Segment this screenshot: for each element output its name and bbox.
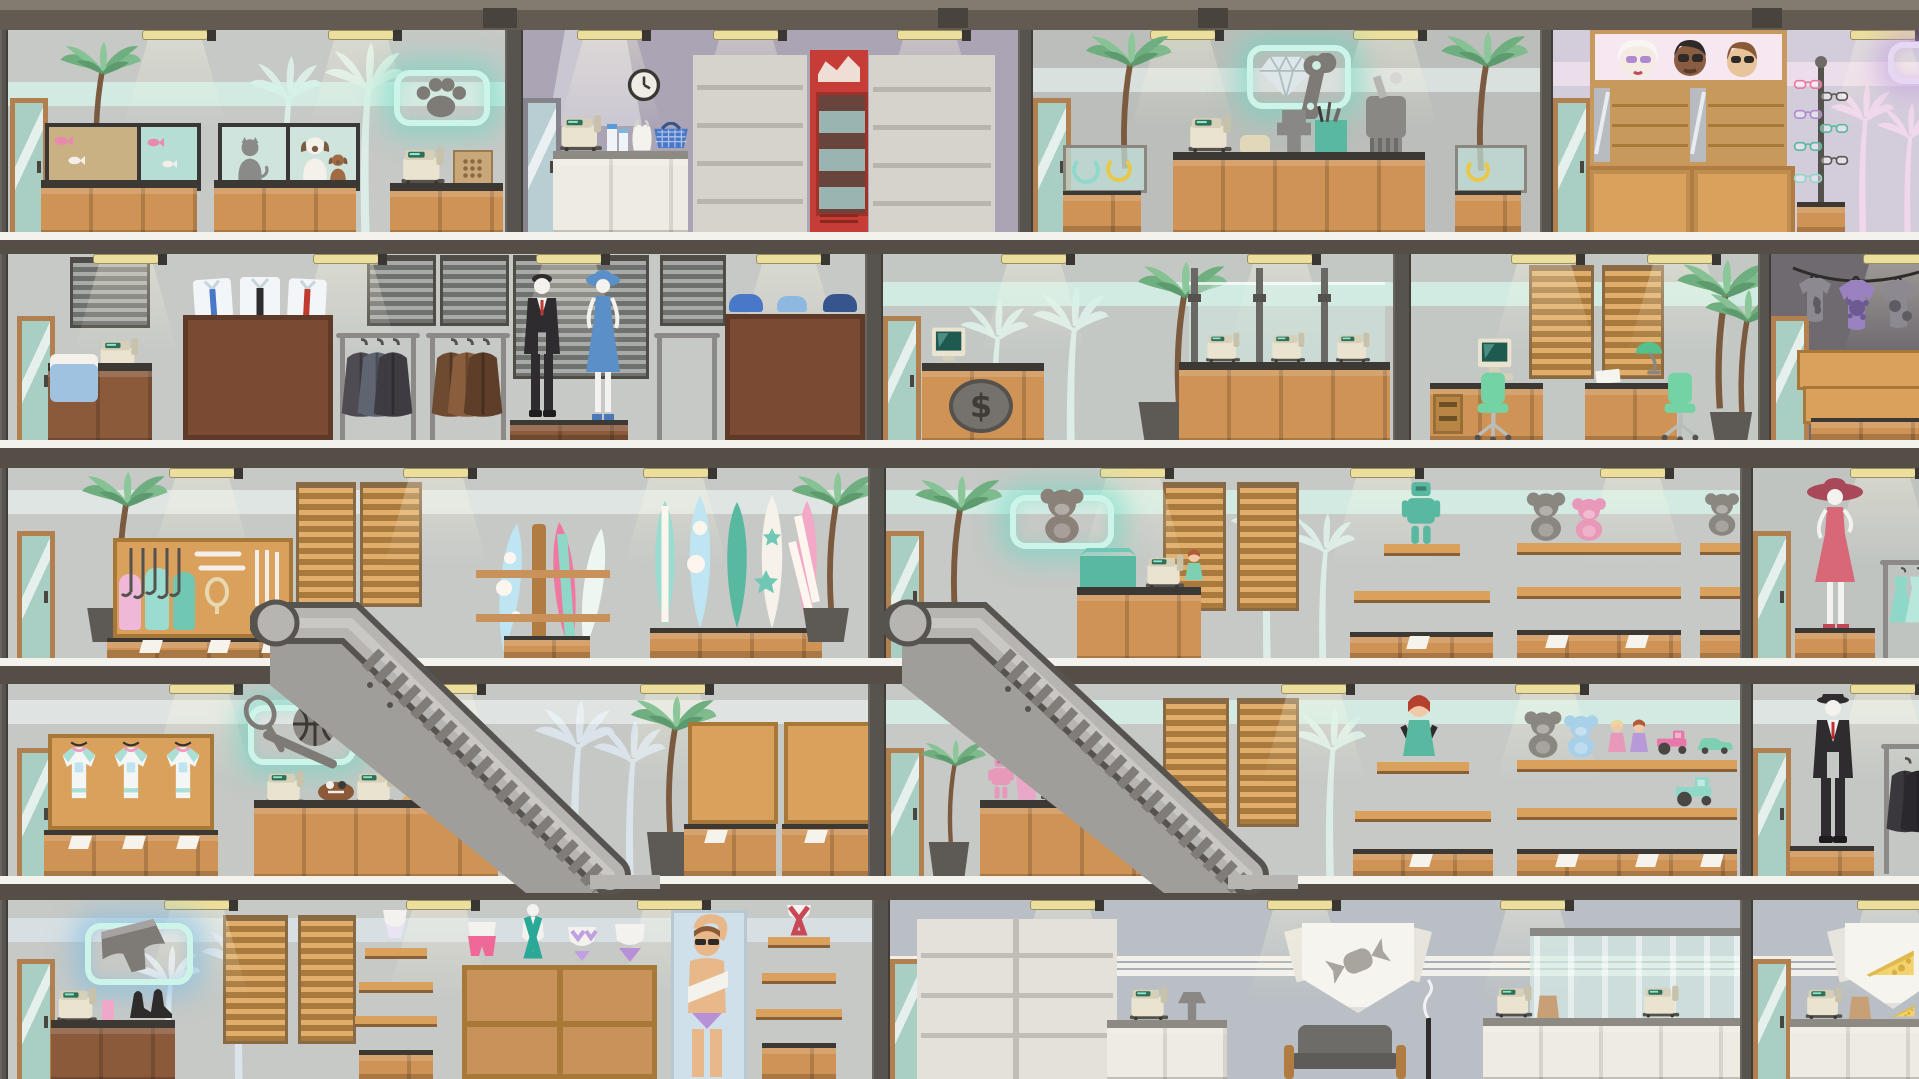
candy-icon [1319,930,1397,993]
roof-vent [1752,8,1782,28]
ceiling-light [1267,900,1333,910]
jewelry-case [1063,145,1141,232]
cash-register [398,146,448,184]
ceiling-light [403,468,469,478]
pet-shop-sign[interactable] [394,70,490,126]
display-platform [510,420,628,440]
shop-bank[interactable]: $ [883,254,1393,440]
shop-door[interactable] [1753,959,1791,1079]
tool-cup [1315,120,1347,152]
candy-shop-sign[interactable] [1302,923,1414,1013]
display-shirts [192,273,328,319]
ceiling-light [1500,900,1566,910]
wall-divider [1740,684,1753,884]
coat-rack-brown[interactable] [426,333,510,440]
escalator-left[interactable] [250,545,670,895]
pedestal [1795,628,1875,658]
cheese-wedge [1891,1000,1917,1020]
floor-surface [0,440,1919,448]
shop-underwear[interactable] [8,900,872,1079]
plant-pot [800,608,852,642]
armchair[interactable] [1280,1025,1410,1079]
shelf-cabinet[interactable] [725,314,865,440]
shop-menswear[interactable] [8,254,865,440]
polishing-machine [1360,82,1412,152]
mannequin-blue-dress [578,268,628,422]
torso-swim-shorts [460,920,504,965]
shop-convenience-store[interactable] [523,30,1018,232]
shop-door[interactable] [883,316,921,440]
coat-rack[interactable] [1881,744,1919,874]
cash-register [1640,984,1682,1018]
faces-display-banner [1590,30,1787,84]
toy-tractor [1653,726,1693,758]
window-blinds [440,255,509,326]
hat-display [725,292,865,314]
roof-vent [938,8,968,28]
repair-shop-sign[interactable] [1247,45,1351,109]
mall-cross-section: $ [0,0,1919,1079]
package-shelves[interactable] [917,913,1117,1079]
rotating-stand[interactable] [1795,60,1847,232]
display-base [1586,166,1694,232]
tiered-display[interactable] [355,908,437,1079]
shop-office[interactable] [1411,254,1758,440]
shop-eyewear-store[interactable] [1553,30,1919,232]
wall-divider [1540,30,1553,240]
mannequin-suit [516,272,568,422]
tee-splat [1839,277,1875,330]
teller-counter[interactable] [1179,268,1393,440]
boxer-shorts-icon [93,912,173,985]
ceiling-light [713,30,779,40]
ceiling-light [1001,254,1067,264]
doll [1627,718,1651,760]
dress-rack[interactable] [1880,560,1919,658]
deli-display-case[interactable] [1530,928,1740,1022]
candy-counter [1107,1020,1227,1079]
paw-icon [412,70,470,124]
grocery-shelves[interactable] [693,55,807,232]
ceiling-light [169,684,235,694]
ceiling-light [1511,254,1577,264]
snack-shelves[interactable] [869,55,995,232]
roof-vent [483,8,517,28]
deli-counter [1483,1018,1740,1079]
model-poster [671,910,747,1079]
underwear-sign[interactable] [85,923,193,985]
shop-cheese[interactable] [1753,900,1919,1079]
escalator-right[interactable] [878,545,1308,895]
roof-vent [1198,8,1228,28]
ceiling-light [1030,900,1096,910]
building-wall [0,30,8,1079]
wall-divider [505,30,523,240]
teddy-bear-icon [1034,485,1090,543]
papers [1595,369,1620,384]
torso-briefs [609,922,651,965]
wall-divider [865,254,883,448]
shirt-cabinet[interactable] [183,315,333,440]
ceiling-light [1857,900,1919,910]
wall-divider [1740,900,1753,1079]
shop-dress-boutique[interactable] [1753,468,1919,658]
cash-register [1185,114,1235,152]
ceiling-light [577,30,643,40]
shop-door[interactable] [17,531,55,658]
cash-register [1803,986,1845,1019]
teddy-shelf[interactable] [1517,487,1681,658]
shop-tshirt[interactable] [1771,254,1919,440]
tee-flame [1799,275,1831,322]
floor-surface [0,232,1919,240]
pet-cabinet [214,180,356,232]
ceiling-light [142,30,208,40]
office-chair [1654,371,1706,440]
mannequin-red-dress [1797,476,1873,630]
teddy-bear [1567,493,1611,543]
wall-clock [627,68,661,102]
ceiling-light [897,30,963,40]
paper-bag [1537,992,1559,1018]
toy-truck [1667,774,1723,808]
floor-slab [0,448,1919,468]
teddy-shelf-partial [1700,487,1740,658]
tee-dots [1881,277,1917,328]
torso-swimsuit [510,903,556,965]
sunglasses-shelves[interactable] [1590,84,1787,166]
drawer-unit [1433,394,1463,434]
dollar-emblem: $ [949,379,1013,433]
ceiling-light [1600,468,1666,478]
pen-cup [102,1000,114,1020]
grinder [1178,992,1206,1020]
large-doll [1389,692,1449,764]
figure-pyramid[interactable] [1350,480,1493,658]
ceiling-light [536,254,602,264]
ceiling-light [1350,468,1416,478]
candle-stand [1417,1008,1439,1079]
ceiling-light [1515,684,1581,694]
robot-figure [1394,480,1448,546]
pedestal [1790,846,1874,876]
tee-shelf [1797,350,1919,390]
parcel-box [453,150,493,187]
display-base [1690,166,1795,232]
wall-divider [1018,30,1033,240]
ceiling-light [1100,468,1166,478]
underwear-counter [51,1020,175,1079]
ceiling-light [1353,30,1419,40]
workbench-counter [1173,152,1425,232]
doll [1605,718,1629,760]
tiered-display[interactable] [756,903,842,1079]
ball-rack[interactable] [688,722,868,876]
wall-divider [1758,254,1771,448]
plant-pot [1707,412,1755,440]
jersey-display[interactable] [48,734,214,876]
folded-jeans [50,354,98,402]
ceiling-light [328,30,394,40]
window-blinds [660,255,726,326]
tee-counter [1811,418,1919,440]
teddy-bear [1559,710,1603,760]
ceiling-light [1850,30,1916,40]
wall-divider [1740,468,1753,666]
heels-pair [124,984,172,1022]
cash-register [557,114,605,151]
paper-bag [1849,993,1871,1019]
ceiling-light [1247,254,1313,264]
toy-shop-sign[interactable] [1010,495,1114,549]
shop-door[interactable] [17,959,55,1079]
wall-divider [872,900,890,1079]
wrench-icon [1287,53,1339,119]
dress-rack[interactable] [654,333,720,440]
shop-confectionery[interactable] [890,900,1740,1079]
shop-door[interactable] [1753,748,1791,876]
torso-panties [379,908,411,948]
tank-cabinet [41,180,197,232]
palm-tree [786,472,868,610]
checkout-counter [553,151,688,232]
jewelry-case [1455,145,1521,232]
doll-pyramid[interactable] [1353,692,1493,876]
shop-pet-shop[interactable] [8,30,505,232]
torso-bikini [564,925,600,965]
floor-slab [0,240,1919,254]
toy-car [1695,730,1735,758]
neighbor-sign-partial [1888,42,1919,84]
plush-shelf[interactable] [1517,704,1737,876]
coat-rack-dark[interactable] [336,333,420,440]
shop-suit[interactable] [1753,684,1919,876]
cash-register [54,987,100,1022]
cheese-counter [1790,1019,1919,1079]
shop-door[interactable] [1753,531,1791,658]
torso-red-swimsuit [782,903,816,937]
office-chair [1467,371,1519,440]
cash-register [1127,986,1171,1020]
hanging-tees[interactable] [1793,258,1919,350]
ceiling-light [93,254,159,264]
palm-tree [1703,290,1758,420]
wall-divider [1393,254,1411,448]
mannequin-black-suit [1803,690,1863,848]
cubby-shelf[interactable] [462,965,657,1079]
ceiling-light [756,254,822,264]
ceiling-light [637,900,703,910]
telephone [1240,135,1270,152]
wooden-blinds [298,915,356,1044]
cheese-icon [1863,939,1919,983]
fridge-logo [818,56,860,82]
ceiling-light [164,900,230,910]
shopping-basket[interactable] [651,122,691,150]
teddy-bear [1521,487,1571,543]
pet-counter [390,183,503,232]
cash-register [1493,984,1535,1018]
shop-jewelry-repair[interactable] [1033,30,1540,232]
ceiling-light [313,254,379,264]
drink-fridge[interactable] [810,50,868,232]
ceiling-light [169,468,235,478]
ceiling-light [643,468,709,478]
